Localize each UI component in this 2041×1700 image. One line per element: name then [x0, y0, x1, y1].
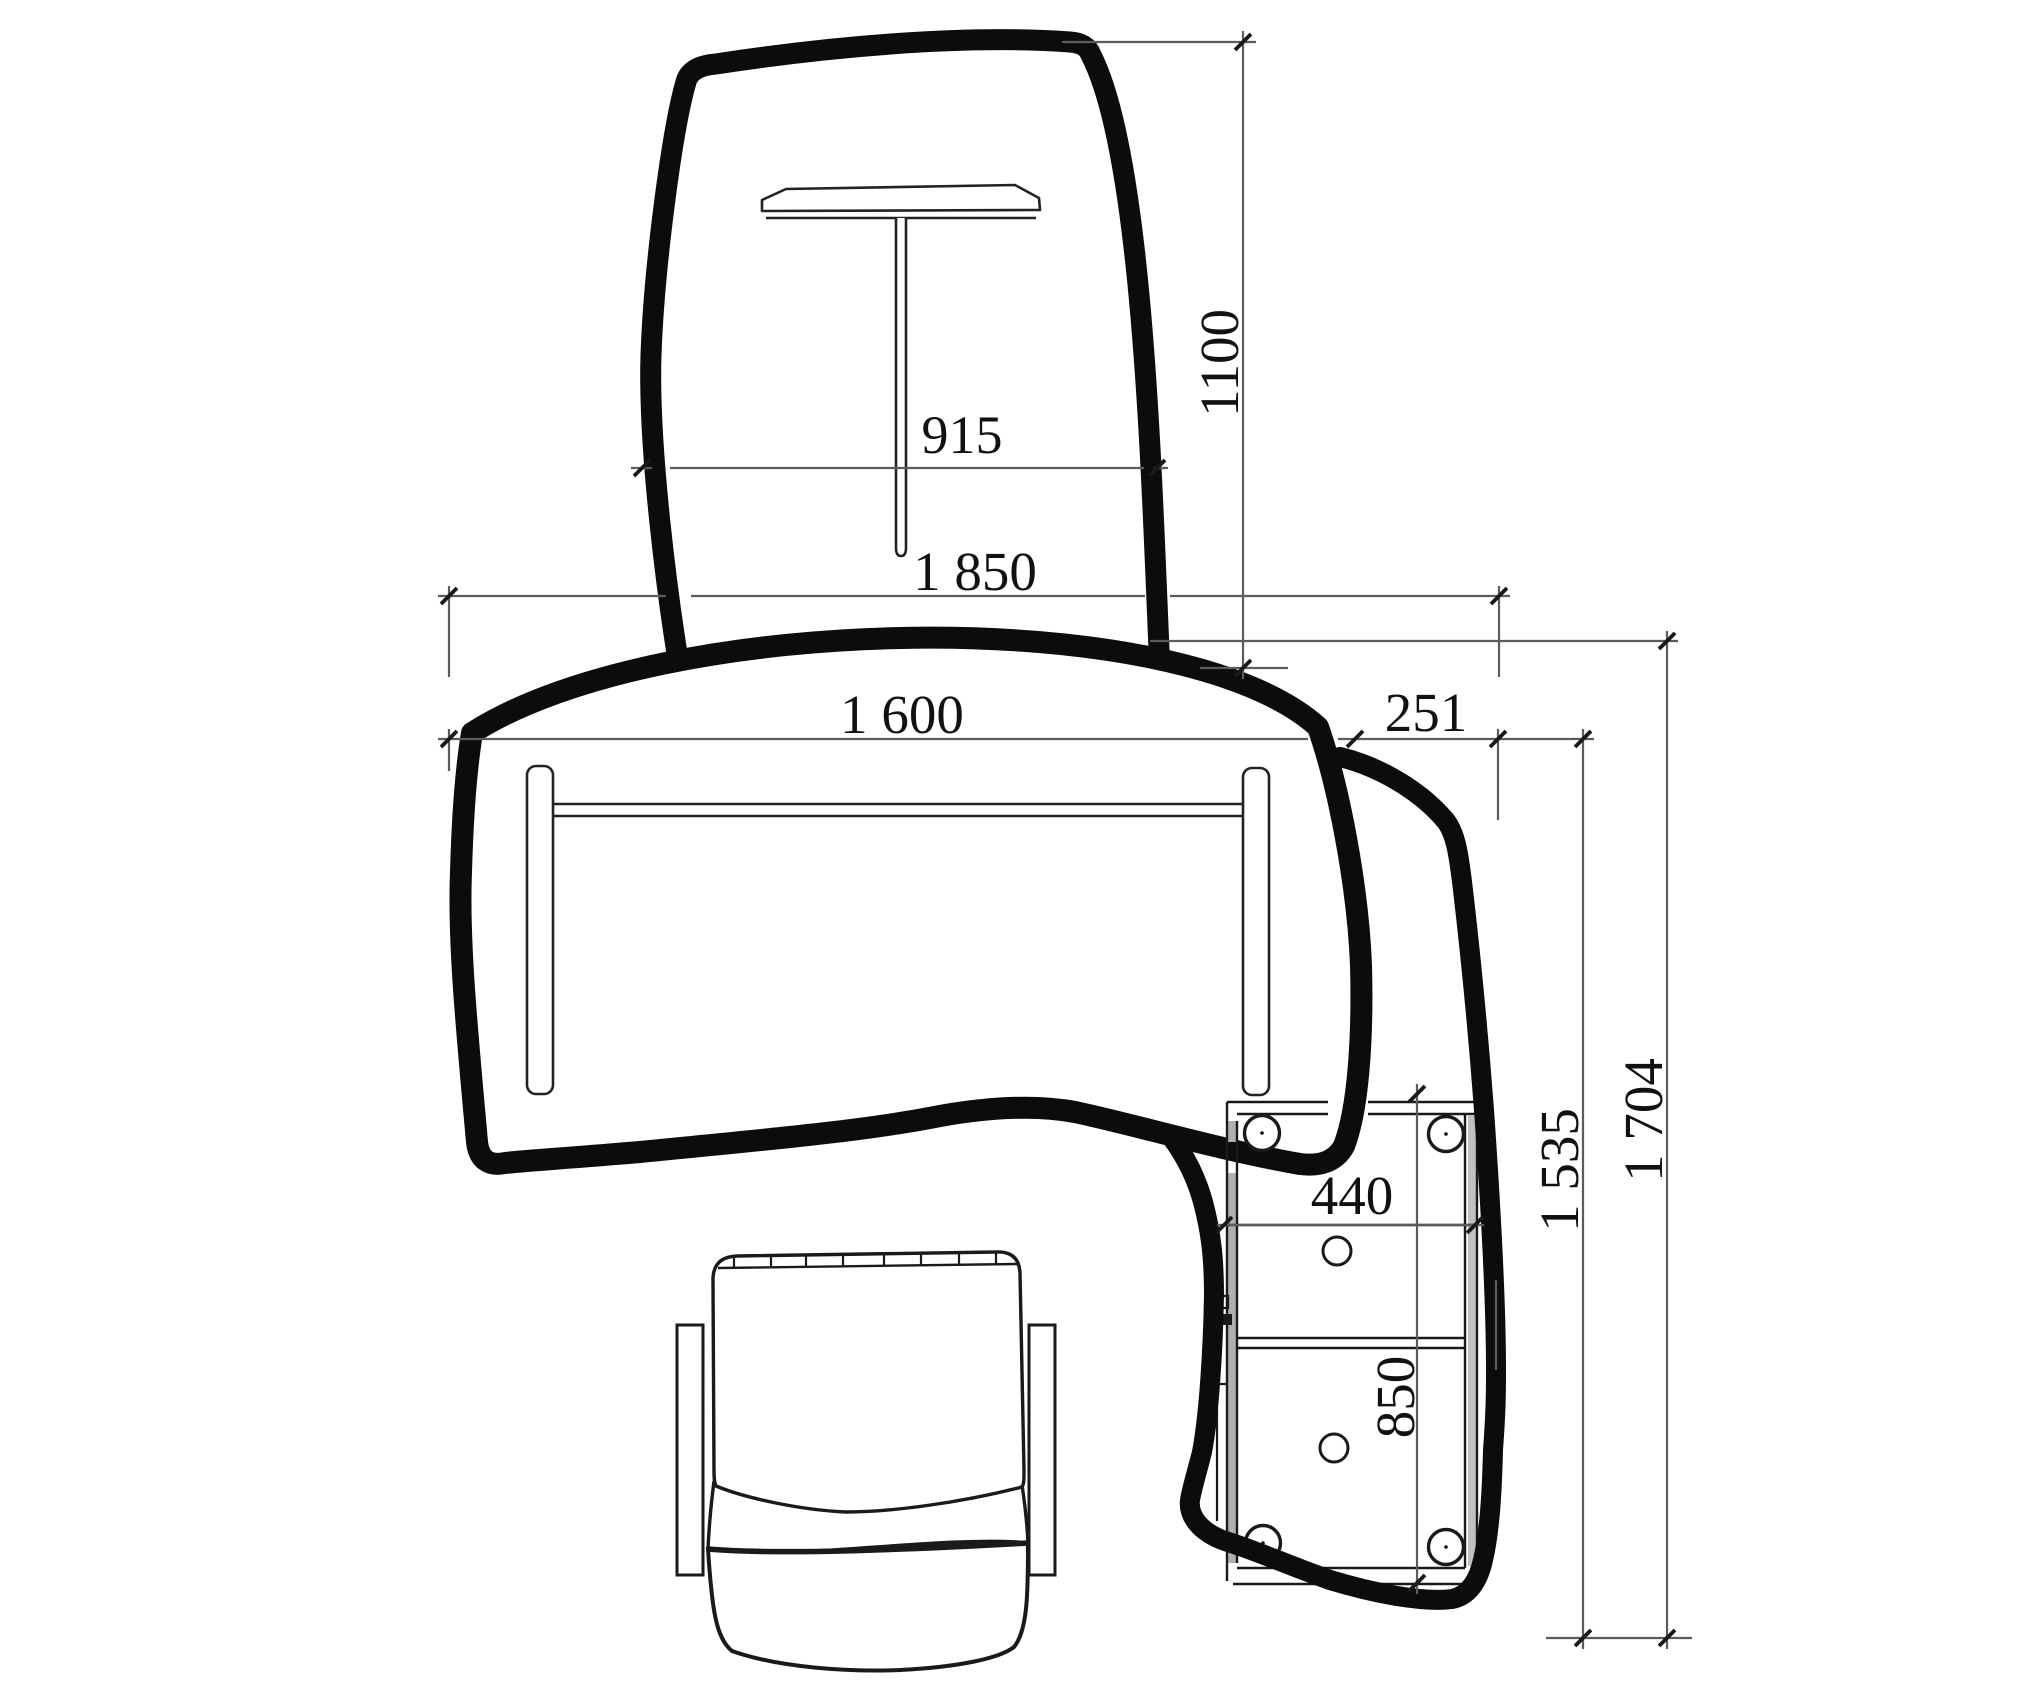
svg-text:251: 251	[1385, 682, 1468, 743]
svg-text:1 535: 1 535	[1529, 1108, 1590, 1232]
svg-text:1100: 1100	[1189, 309, 1250, 417]
svg-text:440: 440	[1311, 1165, 1394, 1226]
svg-text:850: 850	[1365, 1356, 1426, 1439]
svg-text:915: 915	[922, 405, 1003, 465]
svg-text:1 704: 1 704	[1613, 1058, 1674, 1182]
svg-text:1 850: 1 850	[913, 541, 1037, 602]
svg-text:1 600: 1 600	[840, 684, 964, 745]
